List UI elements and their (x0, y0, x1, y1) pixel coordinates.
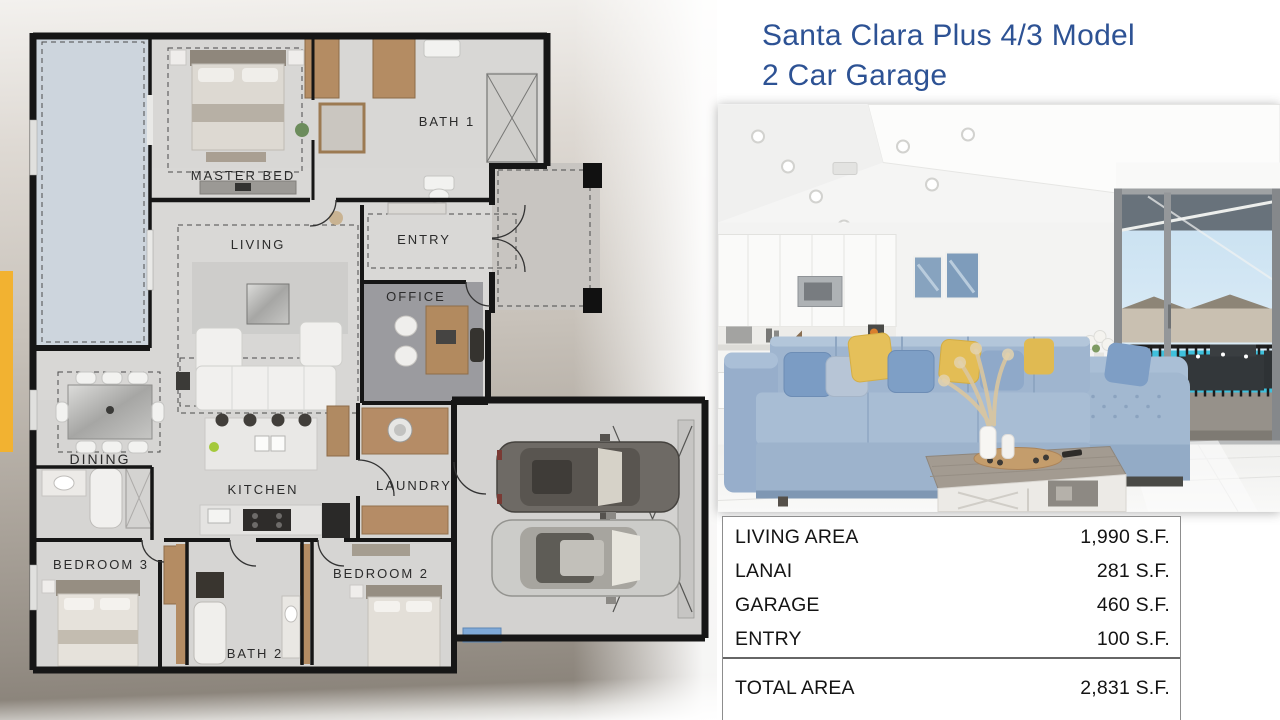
label-bedroom-3: BEDROOM 3 (53, 557, 149, 572)
pantry (327, 406, 349, 456)
area-value: 460 S.F. (1097, 594, 1170, 617)
table-separator (723, 657, 1180, 659)
area-value: 100 S.F. (1097, 628, 1170, 651)
label-dining: DINING (70, 451, 131, 467)
area-value: 2,831 S.F. (1080, 677, 1170, 700)
neighbor-houses (1122, 309, 1280, 343)
label-office: OFFICE (386, 289, 446, 304)
label-master-bed: MASTER BED (191, 168, 296, 183)
area-value: 281 S.F. (1097, 560, 1170, 583)
area-value: 1,990 S.F. (1080, 526, 1170, 549)
coffee-table (247, 284, 289, 324)
entry-console (388, 203, 446, 214)
area-table: LIVING AREA 1,990 S.F. LANAI 281 S.F. GA… (722, 516, 1181, 720)
table-row: LANAI 281 S.F. (723, 554, 1180, 588)
sofa-seat (756, 393, 1090, 445)
door-handle (1168, 305, 1171, 329)
label-bedroom-2: BEDROOM 2 (333, 566, 429, 581)
slide-canvas: MASTER BED BATH 1 ENTRY OFFICE LIVING DI… (0, 0, 1280, 720)
garage-door (678, 420, 694, 618)
area-label: LANAI (735, 560, 792, 583)
vase (980, 427, 996, 459)
area-label: TOTAL AREA (735, 677, 855, 700)
table-row: ENTRY 100 S.F. (723, 622, 1180, 656)
lanai-floor (36, 36, 150, 348)
label-bath-2: BATH 2 (227, 646, 284, 661)
title-line-2: 2 Car Garage (762, 56, 1135, 96)
armchair (300, 322, 342, 366)
wall-art (914, 253, 979, 299)
area-label: ENTRY (735, 628, 802, 651)
label-bath-1: BATH 1 (419, 114, 476, 129)
fridge (322, 503, 350, 538)
label-living: LIVING (231, 237, 286, 252)
label-entry: ENTRY (397, 232, 451, 247)
label-laundry: LAUNDRY (376, 478, 452, 493)
area-label: LIVING AREA (735, 526, 859, 549)
floor-plan: MASTER BED BATH 1 ENTRY OFFICE LIVING DI… (0, 0, 720, 720)
label-kitchen: KITCHEN (227, 482, 298, 497)
title-line-1: Santa Clara Plus 4/3 Model (762, 16, 1135, 56)
living-room-photo (718, 104, 1280, 512)
table-row: LIVING AREA 1,990 S.F. (723, 520, 1180, 554)
table-row-total: TOTAL AREA 2,831 S.F. (723, 671, 1180, 705)
table-shelf (1048, 481, 1098, 507)
yellow-pillow-3 (1024, 339, 1054, 375)
garage-floor (452, 400, 708, 638)
table-row: GARAGE 460 S.F. (723, 588, 1180, 622)
area-label: GARAGE (735, 594, 820, 617)
slide-title: Santa Clara Plus 4/3 Model 2 Car Garage (762, 16, 1135, 96)
car-dark (497, 434, 679, 520)
car-silver (492, 512, 680, 604)
